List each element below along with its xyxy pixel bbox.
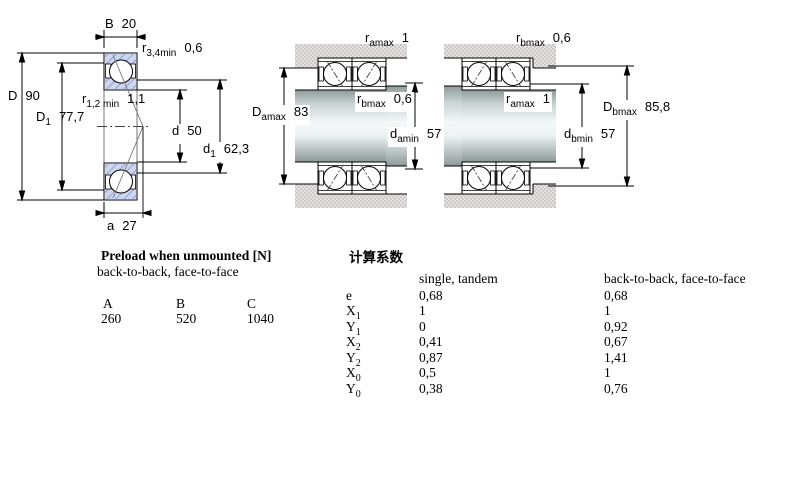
housing-shoulder-bottom [295, 184, 318, 194]
factor-value-single: 0,38 [419, 381, 443, 396]
preload-title: Preload when unmounted [N] [101, 248, 271, 263]
dim-label-arr1-ramax: ramax1 [365, 31, 409, 51]
dim-subscript: amax [261, 112, 285, 123]
factor-value-btb: 0,76 [604, 381, 628, 396]
factor-value-btb: 1 [604, 303, 611, 318]
housing-bottom [444, 194, 556, 208]
factor-value-single: 0 [419, 319, 426, 334]
preload-subtitle: back-to-back, face-to-face [97, 264, 239, 279]
preload-value-B: 520 [176, 311, 196, 326]
dim-label-D1: D177,7 [36, 110, 84, 130]
dim-label-r34min: r3,4min0,6 [142, 41, 202, 61]
bearing-datasheet-drawing: B20 r3,4min0,6 D90 D177,7 r1,2 min1,1 d5… [0, 0, 800, 500]
arrangement-diagram-1 [279, 44, 423, 208]
dim-label-arr2-dbmin: dbmin57 [562, 127, 617, 147]
factor-value-single: 0,41 [419, 334, 443, 349]
preload-col-A: A [103, 296, 113, 311]
dim-subscript: bmax [612, 107, 636, 118]
dim-value: 27 [122, 218, 136, 233]
dim-value: 57 [427, 126, 441, 141]
factor-value-single: 0,87 [419, 350, 443, 365]
dim-label-arr2-ramax: ramax1 [504, 92, 552, 112]
dim-subscript: bmax [520, 38, 544, 49]
factors-title: 计算系数 [349, 250, 403, 265]
dim-subscript: 1,2 min [86, 99, 119, 110]
dim-label-arr1-rbmax: rbmax0,6 [355, 92, 414, 112]
dim-value: 1,1 [127, 91, 145, 106]
dim-value: 85,8 [645, 99, 670, 114]
dim-subscript: amin [397, 134, 419, 145]
dim-value: 50 [187, 123, 201, 138]
preload-value-A: 260 [101, 311, 121, 326]
dim-value: 57 [601, 126, 615, 141]
factor-value-single: 0,5 [419, 365, 436, 380]
dim-subscript: bmax [361, 99, 385, 110]
dim-value: 62,3 [224, 141, 249, 156]
dim-value: 90 [25, 88, 39, 103]
dim-subscript: amax [369, 38, 393, 49]
dim-label-d: d50 [170, 124, 204, 144]
dim-label-arr1-damin: damin57 [388, 127, 443, 147]
dim-subscript: 3,4min [146, 48, 176, 59]
factor-value-single: 0,68 [419, 288, 443, 303]
factor-value-btb: 0,67 [604, 334, 628, 349]
dim-symbol: D [252, 104, 261, 119]
preload-value-C: 1040 [247, 311, 274, 326]
dim-value: 0,6 [394, 91, 412, 106]
dim-Damax-lines [279, 68, 296, 184]
factors-col-back-to-back: back-to-back, face-to-face [604, 271, 746, 286]
factor-symbol: Y0 [346, 381, 361, 402]
ball-bottom [110, 170, 133, 193]
dim-value: 1 [543, 91, 550, 106]
factor-value-btb: 1,41 [604, 350, 628, 365]
preload-col-B: B [176, 296, 185, 311]
dim-subscript: bmin [571, 134, 593, 145]
dim-value: 77,7 [59, 109, 84, 124]
housing-bottom [295, 194, 407, 208]
factor-value-btb: 0,92 [604, 319, 628, 334]
dim-symbol: D [36, 109, 45, 124]
dim-symbol: d [172, 123, 179, 138]
dim-label-D: D90 [8, 89, 40, 109]
dim-label-B: B20 [105, 17, 136, 37]
dim-subscript: amax [510, 99, 534, 110]
factors-col-single-tandem: single, tandem [419, 271, 498, 286]
dim-value: 20 [122, 16, 136, 31]
dim-symbol: B [105, 16, 114, 31]
dim-value: 0,6 [553, 30, 571, 45]
dim-value: 0,6 [184, 40, 202, 55]
factor-value-btb: 0,68 [604, 288, 628, 303]
dim-subscript: 1 [45, 117, 51, 128]
dim-label-r12min: r1,2 min1,1 [82, 92, 145, 112]
dim-symbol: D [603, 99, 612, 114]
preload-col-C: C [247, 296, 256, 311]
dim-value: 83 [294, 104, 308, 119]
dim-symbol: a [107, 218, 114, 233]
dim-subscript: 1 [210, 149, 216, 160]
dim-label-d1: d162,3 [201, 142, 251, 162]
housing-shoulder-top [295, 58, 318, 68]
shaft-shoulder [444, 86, 462, 166]
factor-value-btb: 1 [604, 365, 611, 380]
dim-label-a: a27 [107, 219, 137, 239]
dim-label-arr2-Dbmax: Dbmax85,8 [601, 100, 672, 120]
dim-label-arr2-rbmax: rbmax0,6 [516, 31, 571, 51]
factor-value-single: 1 [419, 303, 426, 318]
dim-value: 1 [402, 30, 409, 45]
ball-top [110, 60, 133, 83]
dim-label-arr1-Damax: Damax83 [250, 105, 310, 125]
dim-symbol: D [8, 88, 17, 103]
